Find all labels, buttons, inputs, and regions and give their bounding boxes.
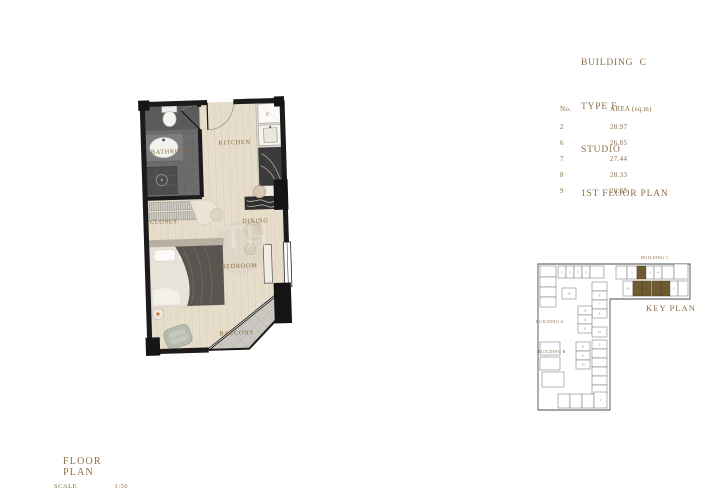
footer-scale: SCALE 1:50	[54, 483, 128, 490]
scale-value: 1:50	[114, 483, 128, 490]
key-plan-unit-number: 10	[626, 287, 630, 291]
key-plan-unit	[570, 394, 582, 408]
footer-title: FLOOR PLAN	[54, 456, 128, 478]
unit-area: 27.44	[604, 155, 627, 163]
key-plan-unit-number: 11	[584, 327, 587, 331]
key-plan-unit-number: 10	[581, 363, 585, 367]
room-label-bedroom: BEDROOM	[221, 262, 257, 270]
key-plan-unit	[540, 277, 556, 287]
scale-label: SCALE	[54, 483, 77, 490]
side-table-icon	[152, 308, 163, 319]
key-plan-unit-number: 14	[567, 292, 571, 296]
stool-icon	[210, 209, 223, 222]
key-plan-unit	[540, 287, 556, 297]
unit-area: 28.97	[604, 123, 627, 131]
key-plan-unit-number: 10	[598, 330, 602, 334]
keyplan-building-b-label: BUILDING B	[538, 349, 566, 354]
unit-no: 6	[558, 139, 604, 147]
area-table-header: No. AREA (sq.m)	[558, 105, 652, 123]
key-plan-unit	[540, 266, 556, 277]
room-label-kitchen: KITCHEN	[218, 139, 250, 147]
floor-plan-sheet: BUILDING C TYPE F STUDIO 1ST FLOOR PLAN …	[0, 0, 707, 500]
floor-plan-drawing: F	[136, 94, 296, 359]
room-label-closet: CLOSET	[150, 218, 178, 226]
key-plan-unit	[590, 266, 604, 278]
col-area: AREA (sq.m)	[604, 105, 652, 113]
keyplan-building-c-label: BUILDING C	[641, 255, 669, 260]
unit-no: 8	[558, 171, 604, 179]
key-plan-unit	[592, 376, 607, 385]
key-plan-unit	[592, 282, 607, 291]
key-plan-unit	[542, 372, 564, 387]
unit-area: 28.33	[604, 171, 627, 179]
key-plan-unit	[662, 266, 674, 279]
key-plan-unit	[616, 266, 627, 279]
unit-no: 7	[558, 155, 604, 163]
key-plan-title: KEY PLAN	[646, 303, 696, 313]
unit-area: 26.85	[604, 139, 627, 147]
table-row: 9 26.85	[558, 187, 652, 203]
key-plan-unit-number: 13	[583, 309, 587, 313]
area-table: No. AREA (sq.m) 2 28.97 6 26.85 7 27.44 …	[558, 105, 652, 203]
unit-no: 2	[558, 123, 604, 131]
footer: FLOOR PLAN SCALE 1:50	[54, 456, 128, 490]
key-plan-unit	[674, 264, 688, 279]
key-plan: 1234109876512341467813121110891021 BUILD…	[528, 242, 703, 417]
key-plan-unit	[558, 394, 570, 408]
keyplan-building-a-label: BUILDING A	[536, 319, 564, 324]
shower-icon	[146, 166, 177, 194]
unit-no: 9	[558, 187, 604, 195]
key-plan-unit	[540, 297, 556, 307]
kitchen-sink-icon	[258, 125, 282, 146]
table-row: 6 26.85	[558, 139, 652, 155]
key-plan-unit	[592, 358, 607, 367]
unit-area: 26.85	[604, 187, 627, 195]
key-plan-unit	[678, 281, 688, 296]
key-plan-unit	[592, 367, 607, 376]
dining-chair-icon	[253, 185, 266, 198]
room-label-bathroom: BATHROOM	[151, 148, 192, 156]
key-plan-unit	[582, 394, 594, 408]
bed-icon	[149, 238, 226, 307]
room-label-balcony: BALCONY	[219, 329, 254, 337]
table-row: 2 28.97	[558, 123, 652, 139]
room-label-dining: DINING	[242, 217, 269, 225]
key-plan-unit	[540, 357, 560, 370]
key-plan-unit-number: 12	[583, 318, 587, 322]
title-building: BUILDING C	[581, 56, 669, 71]
fridge-label: F	[266, 112, 269, 118]
key-plan-unit	[592, 349, 607, 358]
table-row: 8 28.33	[558, 171, 652, 187]
window	[283, 242, 291, 287]
col-no: No.	[558, 105, 604, 113]
table-row: 7 27.44	[558, 155, 652, 171]
